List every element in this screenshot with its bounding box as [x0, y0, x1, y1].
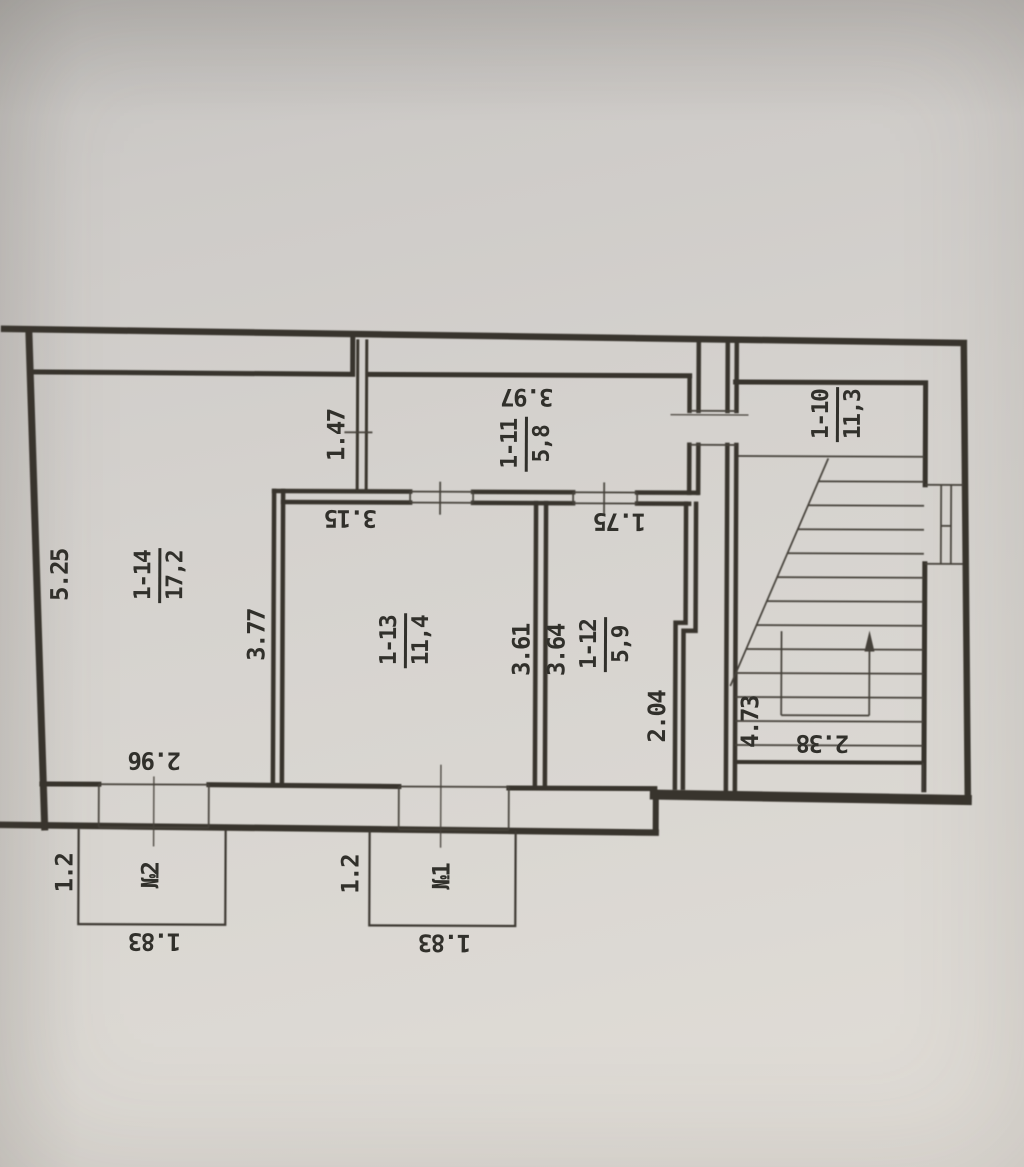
- porch-label-1: №1: [429, 864, 453, 890]
- stair-direction-arrow-icon: [864, 631, 874, 652]
- room-area: 5,9: [607, 617, 633, 673]
- room-label-1-12: 1-12 5,9: [578, 617, 633, 673]
- dim-3-97: 3.97: [502, 385, 554, 409]
- room-number: 1-14: [132, 548, 161, 604]
- dim-2-04: 2.04: [645, 691, 669, 743]
- dim-1-75: 1.75: [594, 509, 646, 533]
- room-label-1-10: 1-10 11,3: [810, 387, 865, 443]
- dim-3-77: 3.77: [244, 609, 268, 661]
- dim-1-47: 1.47: [324, 409, 348, 461]
- porch-label-2: №2: [138, 862, 162, 888]
- dim-1-83-porch2: 1.83: [129, 929, 181, 953]
- room-number: 1-10: [810, 387, 839, 443]
- dim-2-38: 2.38: [797, 731, 849, 755]
- room-number: 1-12: [578, 617, 607, 673]
- floor-plan-photo: 1-14 17,2 1-13 11,4 1-12 5,9 1-11 5,8 1-…: [0, 0, 1024, 1167]
- dim-1-2-porch1: 1.2: [338, 855, 362, 894]
- dim-1-2-porch2: 1.2: [52, 854, 76, 893]
- dim-3-64: 3.64: [544, 624, 568, 676]
- dim-5-25: 5.25: [48, 549, 72, 601]
- room-area: 5,8: [528, 416, 554, 472]
- room-area: 17,2: [161, 548, 187, 604]
- dim-4-73: 4.73: [738, 696, 762, 748]
- room-label-1-11: 1-11 5,8: [499, 416, 554, 472]
- dim-2-96: 2.96: [129, 748, 181, 772]
- room-number: 1-13: [378, 613, 407, 669]
- room-label-1-13: 1-13 11,4: [378, 613, 433, 669]
- floor-plan: 1-14 17,2 1-13 11,4 1-12 5,9 1-11 5,8 1-…: [0, 0, 1024, 1167]
- dim-1-83-porch1: 1.83: [419, 931, 471, 955]
- room-number: 1-11: [499, 416, 528, 472]
- dim-3-15: 3.15: [325, 506, 377, 530]
- room-area: 11,3: [839, 387, 865, 443]
- room-area: 11,4: [407, 613, 433, 669]
- thin-partition: [357, 339, 367, 491]
- dim-3-61: 3.61: [509, 624, 533, 676]
- room-label-1-14: 1-14 17,2: [132, 548, 187, 604]
